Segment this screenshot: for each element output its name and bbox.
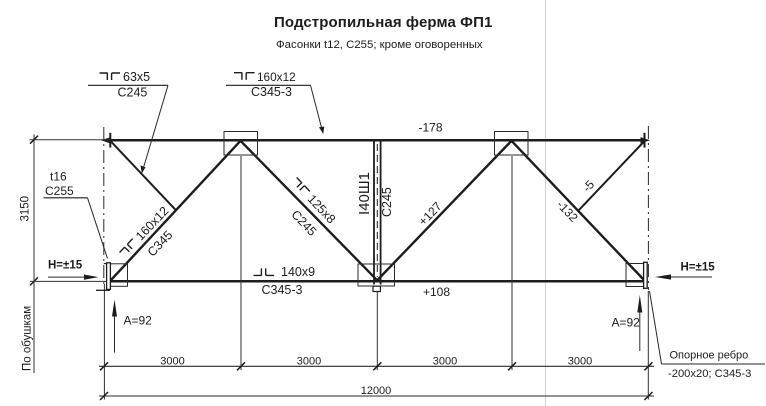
svg-text:3000: 3000 <box>568 355 592 367</box>
svg-text:3000: 3000 <box>160 355 184 367</box>
svg-text:160х12: 160х12 <box>257 70 296 84</box>
svg-text:3000: 3000 <box>433 355 457 367</box>
svg-text:Н=±15: Н=±15 <box>681 261 716 273</box>
svg-text:-132: -132 <box>554 198 581 225</box>
svg-text:С245: С245 <box>118 86 148 100</box>
svg-text:140х9: 140х9 <box>281 265 315 279</box>
svg-text:А=92: А=92 <box>124 314 153 328</box>
svg-text:63х5: 63х5 <box>123 70 150 84</box>
svg-text:А=92: А=92 <box>612 316 641 330</box>
svg-text:С345-3: С345-3 <box>262 283 303 297</box>
svg-text:Фасонки t12, С255; кроме огово: Фасонки t12, С255; кроме оговоренных <box>276 39 483 51</box>
svg-text:С245: С245 <box>380 187 394 217</box>
svg-text:3000: 3000 <box>297 355 321 367</box>
svg-text:3150: 3150 <box>20 196 32 222</box>
svg-text:С345-3: С345-3 <box>251 85 292 99</box>
svg-text:Подстропильная ферма ФП1: Подстропильная ферма ФП1 <box>274 14 492 31</box>
svg-text:По обушкам: По обушкам <box>22 306 34 371</box>
svg-text:12000: 12000 <box>361 385 392 397</box>
svg-text:Опорное ребро: Опорное ребро <box>670 349 749 361</box>
svg-text:Н=±15: Н=±15 <box>48 260 83 272</box>
svg-text:-200х20; С345-3: -200х20; С345-3 <box>668 368 751 380</box>
svg-text:I40Ш1: I40Ш1 <box>356 172 373 215</box>
svg-text:С245: С245 <box>288 207 319 238</box>
svg-text:t16: t16 <box>50 170 67 184</box>
svg-text:+108: +108 <box>423 285 450 299</box>
svg-text:-178: -178 <box>419 121 443 135</box>
svg-text:С255: С255 <box>45 184 74 198</box>
